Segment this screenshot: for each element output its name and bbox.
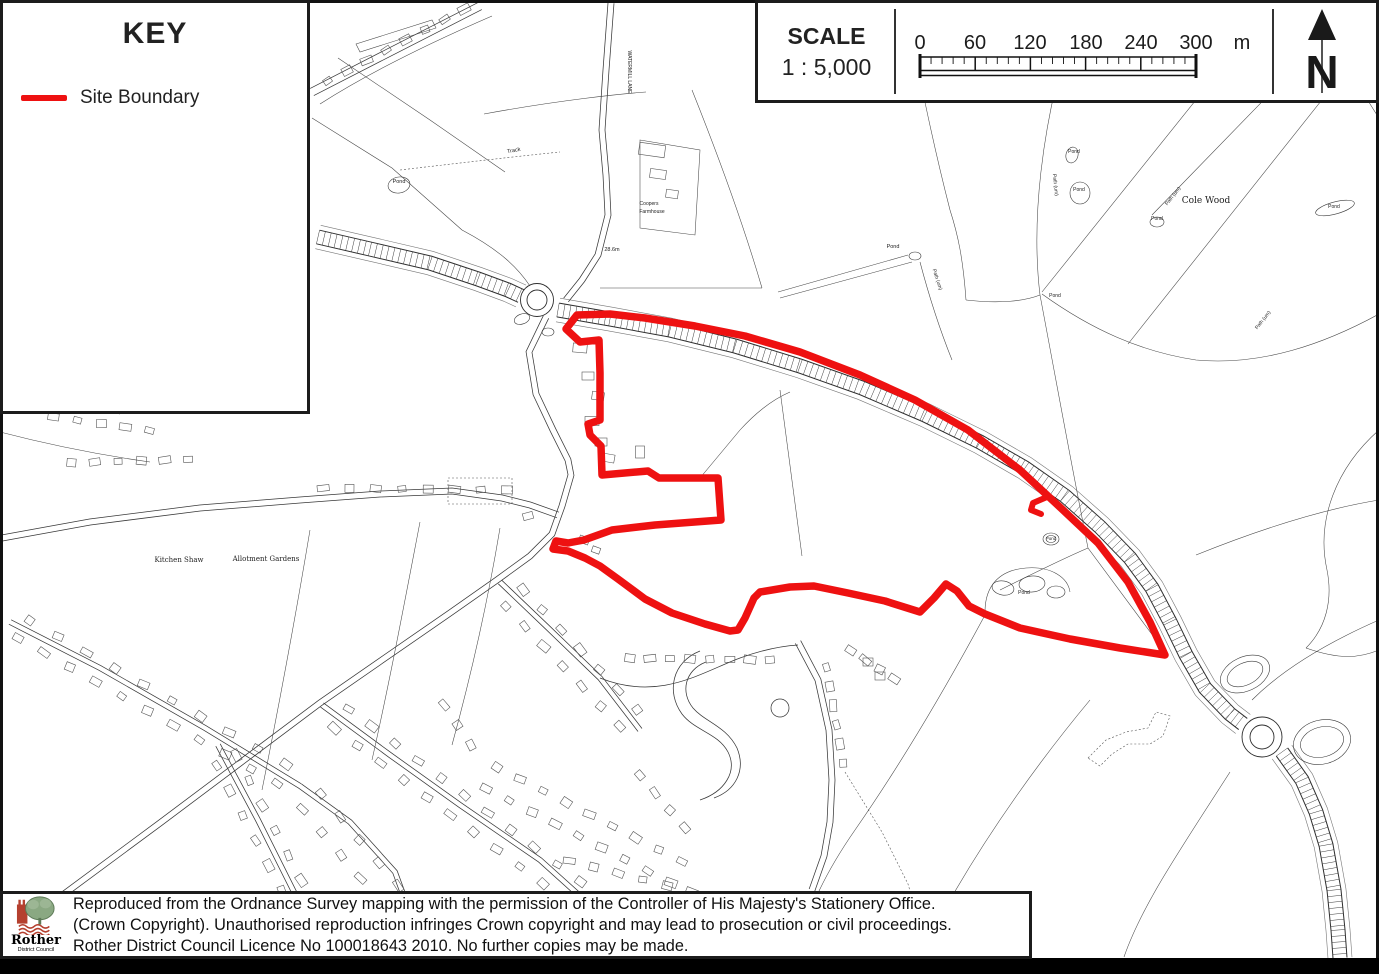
rother-council-logo: Rother District Council — [7, 895, 65, 955]
map-label: Track — [507, 147, 522, 155]
map-label: Allotment Gardens — [232, 555, 300, 563]
svg-text:120: 120 — [1013, 32, 1046, 54]
map-label: Coopers — [640, 201, 659, 207]
copyright-box: Rother District Council Reproduced from … — [0, 891, 1032, 959]
rother-logo-icon — [12, 895, 60, 935]
map-label: Cole Wood — [1182, 196, 1231, 206]
copyright-line-1: Reproduced from the Ordnance Survey mapp… — [73, 894, 952, 915]
map-label: Pond — [1049, 293, 1061, 299]
scale-tick-labels: 0 60 120 180 240 300 m — [914, 32, 1250, 54]
map-label: Pond — [1328, 204, 1340, 210]
key-panel: KEY Site Boundary — [0, 0, 310, 414]
copyright-line-3: Rother District Council Licence No 10001… — [73, 936, 952, 957]
map-label: WATERMILL LANE — [626, 51, 632, 95]
site-boundary-layer — [553, 314, 1165, 655]
map-label: Pond — [1046, 536, 1057, 541]
map-page: PondTrackWATERMILL LANE28.6mCoopersFarmh… — [0, 0, 1379, 974]
legend-item-site-boundary: Site Boundary — [21, 87, 307, 109]
svg-text:300: 300 — [1179, 32, 1212, 54]
logo-title: Rother — [11, 935, 61, 947]
site-boundary-spur — [1031, 497, 1047, 514]
svg-text:180: 180 — [1069, 32, 1102, 54]
map-label: Pond — [1073, 187, 1085, 193]
scale-unit: m — [1234, 32, 1251, 54]
map-label: Path (um) — [1164, 186, 1182, 207]
scale-bar: 0 60 120 180 240 300 m N — [758, 3, 1376, 100]
north-label: N — [1305, 46, 1338, 98]
map-label: Pond — [1151, 216, 1163, 222]
map-label: Path (um) — [1051, 174, 1059, 197]
key-title: KEY — [3, 17, 307, 51]
map-label: Path (um) — [1254, 310, 1272, 331]
map-label: Pond — [1018, 590, 1030, 596]
copyright-line-2: (Crown Copyright). Unauthorised reproduc… — [73, 915, 952, 936]
map-labels-layer: PondTrackWATERMILL LANE28.6mCoopersFarmh… — [154, 51, 1340, 596]
legend-item-label: Site Boundary — [80, 87, 199, 109]
svg-text:0: 0 — [914, 32, 925, 54]
site-boundary-outline — [553, 314, 1165, 655]
scale-panel: SCALE 1 : 5,000 0 60 120 180 240 300 m — [755, 0, 1379, 103]
map-label: Pond — [887, 244, 900, 250]
map-label: Kitchen Shaw — [154, 556, 203, 564]
map-label: Farmhouse — [639, 209, 665, 215]
map-label: Pond — [1068, 149, 1080, 155]
north-arrow-icon: N — [1305, 9, 1338, 98]
site-boundary-swatch — [21, 95, 67, 101]
map-label: Pond — [393, 179, 406, 185]
svg-text:60: 60 — [964, 32, 986, 54]
copyright-text: Reproduced from the Ordnance Survey mapp… — [73, 894, 952, 957]
logo-subtitle: District Council — [18, 947, 55, 954]
map-label: 28.6m — [604, 247, 620, 253]
bottom-frame-band — [0, 958, 1379, 974]
map-label: Path (um) — [931, 268, 944, 291]
scale-ruler-glyph — [920, 54, 1196, 78]
svg-text:240: 240 — [1124, 32, 1157, 54]
